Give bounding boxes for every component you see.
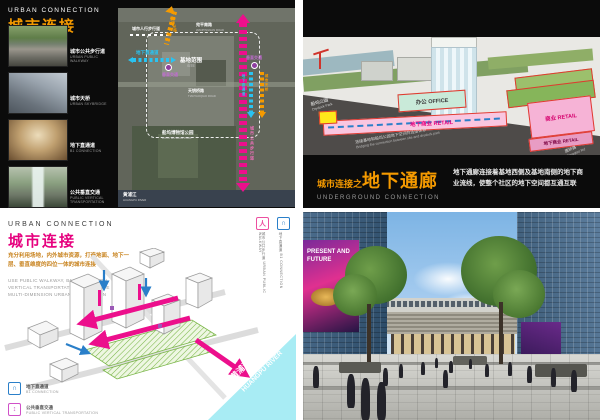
- title-subtitle: UNDERGROUND CONNECTION: [317, 195, 440, 201]
- underground-title-band: 城市连接之地下通廊 UNDERGROUND CONNECTION 地下通廊连接着…: [303, 155, 600, 208]
- tree-trunk: [367, 304, 371, 362]
- lobby-glazing: [391, 334, 515, 354]
- person-silhouette: [361, 378, 370, 420]
- person-silhouette: [443, 370, 448, 388]
- magenta-arrowhead-up: [236, 14, 250, 23]
- office-label: 办公 OFFICE: [415, 96, 448, 106]
- panel-title-en: URBAN CONNECTION: [8, 221, 114, 228]
- person-silhouette: [485, 364, 489, 377]
- title-prefix: 城市连接之: [317, 179, 362, 189]
- vertical-transport-dot: [165, 64, 172, 71]
- walker-icon: 人: [256, 217, 269, 230]
- vertical-transport-dot: [251, 62, 258, 69]
- person-silhouette: [508, 362, 512, 376]
- title-main: 地下通廊: [362, 171, 438, 191]
- underground-title: 城市连接之地下通廊 UNDERGROUND CONNECTION: [317, 167, 440, 201]
- crane-arm: [313, 49, 329, 56]
- planter: [339, 362, 381, 373]
- skybridge-dashed-arrow-right: [260, 72, 264, 112]
- tunnel-icon: ∩: [8, 382, 21, 395]
- vt-shaft: [138, 284, 141, 300]
- photo-urban-skybridge: [8, 72, 68, 114]
- river-label: 黄浦江 HUANGPU RIVER: [123, 192, 146, 202]
- person-silhouette: [527, 366, 532, 383]
- vt-marker: [158, 324, 162, 328]
- cyan-arrowhead-right: [171, 57, 176, 63]
- road-label-mid: 天钥桥路 TIANYAOQIAO ROAD: [188, 88, 216, 98]
- person-silhouette: [421, 362, 425, 375]
- park-label: 船坞博物馆公园 DOCK MUSEUM PARK: [162, 130, 194, 140]
- map-park-pond: [158, 134, 198, 178]
- walkway-label: 城市人行步行道: [132, 26, 160, 32]
- legend-item-b1: ∩ 地下直通道 B1 CONNECTION: [8, 382, 59, 395]
- presentation-board: URBAN CONNECTION 城市连接 城市公共步行道 URBAN PUBL…: [0, 0, 600, 420]
- tunnel-icon: ∩: [277, 217, 290, 230]
- axon-drawing: 办公 OFFICE 地下商业 RETAIL 商业 RETAIL 地下商业 RET…: [303, 37, 600, 155]
- photo-caption: 地下直通道 B1 CONNECTION: [70, 142, 116, 153]
- planter: [535, 364, 587, 377]
- map-road-band: [118, 8, 295, 22]
- panel-title-en: URBAN CONNECTION: [8, 7, 100, 14]
- b1-dashed-arrow-right: [249, 72, 253, 112]
- site-plan-map: 基地范围 SITE 宛平南路 WANPINGNAN ROAD 天钥桥路 TIAN…: [118, 8, 295, 207]
- person-silhouette: [399, 364, 403, 378]
- retail-box-label: 商业 RETAIL: [545, 111, 578, 123]
- site-label: 基地范围 SITE: [180, 56, 202, 68]
- panel-urban-connection-top: URBAN CONNECTION 城市连接 城市公共步行道 URBAN PUBL…: [0, 0, 295, 208]
- tree-trunk: [499, 302, 503, 364]
- vt-label-left: 垂直交通: [162, 72, 178, 78]
- person-silhouette: [571, 370, 577, 392]
- vt-marker: [110, 306, 114, 310]
- axon-building: [361, 61, 393, 81]
- callout-box: [319, 111, 338, 125]
- person-silhouette: [435, 358, 438, 368]
- b1-label-right: 地下直通道: [242, 74, 247, 97]
- b1-dashed-arrow: [133, 58, 171, 62]
- photo-urban-public-walkway: [8, 25, 68, 67]
- b1-arrow: [66, 344, 86, 352]
- elevator-icon: ↕: [8, 403, 21, 416]
- road-label-top: 宛平南路 WANPINGNAN ROAD: [196, 22, 224, 32]
- media-screen-right: [521, 322, 561, 356]
- vt-label-right: 垂直交通: [246, 55, 262, 61]
- orange-arrowhead-down: [258, 112, 266, 118]
- river-label-zh: 黄浦江: [228, 357, 252, 381]
- photo-caption: 城市公共步行道 URBAN PUBLIC WALKWAY: [70, 48, 116, 63]
- photo-public-vertical-transportation: [8, 166, 68, 208]
- legend-item-vertical-transport: ↕ 公共垂直交通 PUBLIC VERTICAL TRANSPORTATION: [8, 403, 98, 416]
- magenta-arrowhead-down: [236, 183, 250, 192]
- photo-caption: 城市天桥 URBAN SKYBRIDGE: [70, 95, 116, 106]
- photo-caption: 公共垂直交通 PUBLIC VERTICAL TRANSPORTATION: [70, 189, 116, 204]
- plaza-rendering: PRESENT AND FUTURE: [303, 212, 600, 420]
- person-silhouette: [449, 361, 453, 373]
- person-silhouette: [377, 382, 386, 420]
- underground-description: 地下通廊连接着基地西侧及基地南侧的地下商业流线，使整个社区的地下空间都互通互联: [453, 168, 589, 189]
- cyan-arrowhead-down: [247, 112, 255, 118]
- riverwalk-label: 城市公共步行道: [249, 126, 255, 161]
- vt-shaft: [98, 290, 101, 306]
- person-silhouette: [551, 368, 556, 387]
- axon-building: [397, 57, 433, 81]
- riverwalk-dashed-arrow: [239, 23, 247, 183]
- panel-underground-connection: 办公 OFFICE 地下商业 RETAIL 商业 RETAIL 地下商业 RET…: [303, 0, 600, 208]
- person-silhouette: [347, 374, 355, 408]
- photo-b1-connection: [8, 119, 68, 161]
- person-silhouette: [313, 366, 319, 388]
- river-connection-arrow: [196, 340, 242, 372]
- crane-mast: [319, 53, 321, 69]
- person-silhouette: [469, 359, 472, 369]
- panel-urban-connection-diagram: URBAN CONNECTION 城市连接 充分利用场地，内外城市资源，打造地面…: [0, 212, 296, 420]
- b1-label: 地下直通道: [136, 50, 159, 56]
- axon-green-band: [488, 48, 594, 69]
- skybridge-label-right: 城市天桥: [265, 74, 270, 92]
